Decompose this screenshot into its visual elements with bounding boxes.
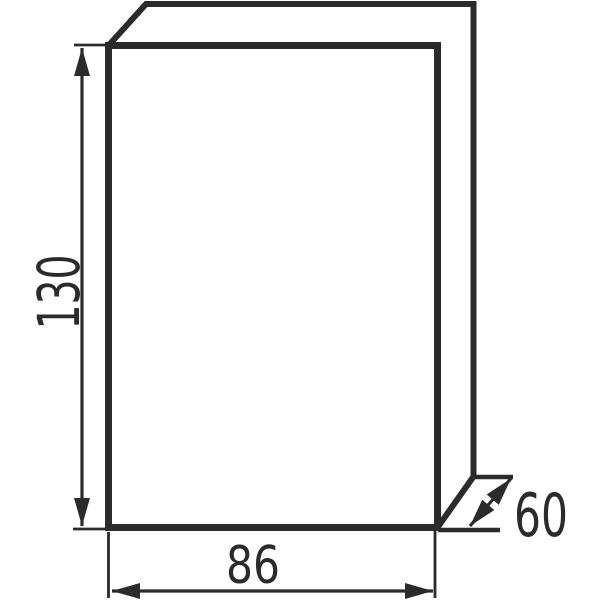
box-front-face [109,46,438,528]
height-dimension-label: 130 [25,255,93,330]
box-back-outline [109,4,474,528]
drawing-canvas: 130 86 60 [0,0,600,600]
depth-dimension-label: 60 [514,481,568,551]
width-dimension-label: 86 [226,536,280,596]
technical-dimension-drawing: 130 86 60 [0,0,600,600]
depth-dimension-arrow [470,479,511,527]
